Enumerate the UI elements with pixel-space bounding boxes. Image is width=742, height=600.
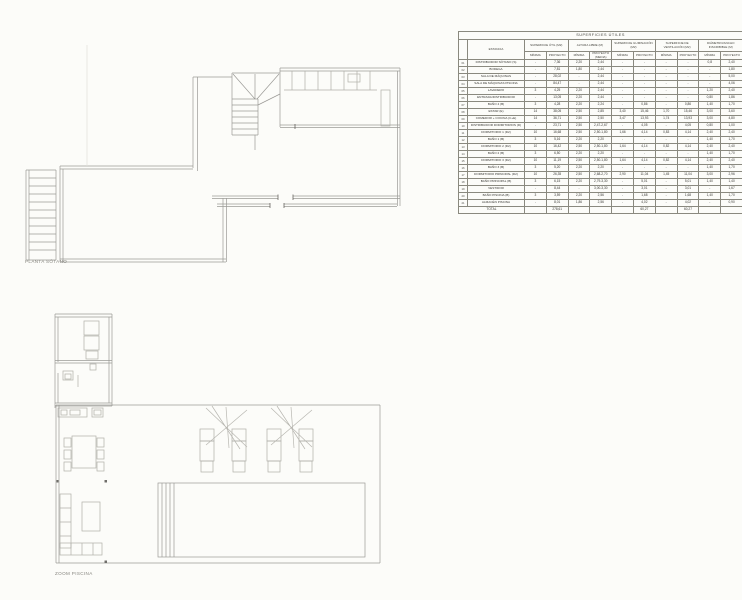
column-sub-header: PROYECTO (MEDIA)	[590, 52, 612, 60]
dining-table	[72, 436, 96, 468]
value-cell: 2,50	[568, 144, 590, 151]
value-cell: 10	[525, 144, 547, 151]
column-group-header: ALTURA LIBRE (M)	[568, 40, 612, 52]
pool-house-furniture	[63, 321, 99, 387]
row-number: 09	[459, 116, 468, 123]
room-name: DORMITORIO PRINCIPAL (D2)	[468, 172, 525, 179]
coffee-table	[82, 502, 100, 531]
value-cell: 2,40	[721, 158, 742, 165]
value-cell: -	[655, 102, 677, 109]
value-cell: 26,35	[546, 172, 568, 179]
value-cell: -	[633, 81, 655, 88]
value-cell: 13,05	[546, 95, 568, 102]
column-sub-header: MÍNIMA	[699, 52, 721, 60]
interior-staircase	[232, 74, 280, 150]
value-cell: 4,05	[633, 123, 655, 130]
value-cell: 3,00-3,30	[590, 186, 612, 193]
value-cell: 2,90	[612, 172, 634, 179]
column-sub-header: MÍNIMA	[655, 52, 677, 60]
value-cell: -	[612, 179, 634, 186]
value-cell: 5,00	[721, 74, 742, 81]
total-value-cell	[525, 207, 547, 214]
value-cell: 3,01	[677, 186, 699, 193]
pool-steps	[162, 483, 174, 557]
pool-zoom-plan	[40, 305, 400, 575]
value-cell: 23,71	[546, 123, 568, 130]
value-cell: -	[633, 60, 655, 67]
total-value-cell	[655, 207, 677, 214]
room-name: DISTRIBUIDOR DORMITORIOS (D)	[468, 123, 525, 130]
value-cell: -	[655, 186, 677, 193]
table-row: 05LAVADERO34,252,202,44----1,202,40	[459, 88, 742, 95]
value-cell: 2,20	[590, 137, 612, 144]
row-number: 12	[459, 137, 468, 144]
value-cell: 36,71	[546, 116, 568, 123]
value-cell: 1,64	[612, 144, 634, 151]
value-cell: 1,68	[677, 193, 699, 200]
column-sub-header: PROYECTO	[633, 52, 655, 60]
value-cell: 3,47	[612, 116, 634, 123]
table-row: 15DORMITORIO 3 (D2)1011,192,502,50-1,801…	[459, 158, 742, 165]
value-cell: 3,60	[721, 109, 742, 116]
value-cell: 84,47	[546, 81, 568, 88]
value-cell: 8,01	[546, 200, 568, 207]
value-cell: 1,40	[699, 151, 721, 158]
value-cell: 7,36	[546, 60, 568, 67]
column-group-header: SUPERFICIE ILUMINACIÓN (M2)	[612, 40, 656, 52]
value-cell: 5,01	[633, 179, 655, 186]
value-cell: -	[699, 81, 721, 88]
value-cell: 1,40	[699, 102, 721, 109]
value-cell: 0,90	[721, 200, 742, 207]
value-cell: 1,68	[633, 193, 655, 200]
value-cell: 4,14	[677, 144, 699, 151]
value-cell: 2,50	[568, 116, 590, 123]
row-number: 06	[459, 95, 468, 102]
value-cell: 3,00	[699, 116, 721, 123]
value-cell: 13,93	[677, 116, 699, 123]
room-name: SALA DE MÁQUINAS PISCINA	[468, 81, 525, 88]
table-row: 17DORMITORIO PRINCIPAL (D2)1026,352,502,…	[459, 172, 742, 179]
table-row: 13DORMITORIO 2 (D2)1016,422,502,50-1,801…	[459, 144, 742, 151]
column-group-header: DIÁMETRO/ANCHO INSCRIBIBLE (M)	[699, 40, 742, 52]
value-cell: 1,80	[568, 67, 590, 74]
value-cell: 0,86	[677, 102, 699, 109]
value-cell: -	[699, 67, 721, 74]
value-cell: 3	[525, 102, 547, 109]
value-cell: -	[677, 60, 699, 67]
areas-table-head: SUPERFICIES ÚTILESESTANCIASUPERFICIE ÚTI…	[459, 32, 742, 60]
value-cell: -	[525, 74, 547, 81]
value-cell: 16,68	[546, 130, 568, 137]
column-sub-header: MÍNIMA	[612, 52, 634, 60]
value-cell: 1,66	[612, 130, 634, 137]
value-cell: 0,80	[699, 95, 721, 102]
value-cell: 2,20	[568, 151, 590, 158]
value-cell: -	[655, 137, 677, 144]
value-cell: 11,04	[677, 172, 699, 179]
total-value-cell: 60,27	[633, 207, 655, 214]
toilet	[63, 371, 73, 380]
column-group-header: SUPERFICIE DE VENTILACIÓN (M2)	[655, 40, 699, 52]
value-cell: -	[655, 200, 677, 207]
total-value-cell	[568, 207, 590, 214]
value-cell: 2,20	[590, 151, 612, 158]
value-cell: 1,40	[721, 179, 742, 186]
value-cell: 2,44	[590, 74, 612, 81]
value-cell: 3,00	[699, 172, 721, 179]
total-value-cell	[590, 207, 612, 214]
scanned-plan-sheet: PLANTA SÓTANO	[0, 0, 742, 600]
value-cell: -	[525, 60, 547, 67]
value-cell: 2,50	[568, 123, 590, 130]
total-value-cell	[721, 207, 742, 214]
value-cell: -	[699, 186, 721, 193]
table-row: 18BAÑO PRINCIPAL (B)36,152,202,79-3,30-5…	[459, 179, 742, 186]
value-cell: 15,46	[677, 109, 699, 116]
column-sub-header: PROYECTO	[721, 52, 742, 60]
outdoor-kitchen-counter	[58, 408, 103, 417]
value-cell: -	[612, 102, 634, 109]
value-cell: 2,50-1,80	[590, 130, 612, 137]
table-row: 03SALA DE MÁQUINAS-28,02-2,44-----5,00	[459, 74, 742, 81]
basement-walls	[60, 68, 400, 262]
room-name: VESTIDOR	[468, 186, 525, 193]
value-cell: 2,56	[590, 200, 612, 207]
areas-table: SUPERFICIES ÚTILESESTANCIASUPERFICIE ÚTI…	[458, 31, 742, 214]
value-cell: 2,50	[568, 130, 590, 137]
total-value-cell: 60,27	[677, 207, 699, 214]
basement-plan-label: PLANTA SÓTANO	[25, 259, 67, 264]
room-name: BAÑO 4 (B)	[468, 102, 525, 109]
value-cell: 2,44	[590, 60, 612, 67]
pool-plan-label: ZOOM PISCINA	[55, 571, 93, 576]
sun-lounger	[299, 429, 313, 472]
value-cell: 4,14	[633, 144, 655, 151]
room-name: BAÑO PISCINA (B)	[468, 193, 525, 200]
value-cell: -	[612, 74, 634, 81]
table-row: 11DORMITORIO 1 (D2)1016,682,502,50-1,801…	[459, 130, 742, 137]
value-cell: -	[677, 95, 699, 102]
swimming-pool	[158, 483, 365, 557]
room-name: LAVADERO	[468, 88, 525, 95]
room-name: DORMITORIO 2 (D2)	[468, 144, 525, 151]
value-cell: 1,64	[612, 158, 634, 165]
value-cell: 2,96	[721, 172, 742, 179]
row-number: 11	[459, 130, 468, 137]
terrace-outline	[56, 405, 380, 563]
parasol-icon	[271, 406, 312, 449]
value-cell: -	[655, 151, 677, 158]
value-cell: -	[612, 95, 634, 102]
value-cell: 10	[525, 158, 547, 165]
value-cell: 2,56	[590, 193, 612, 200]
value-cell: -	[525, 95, 547, 102]
areas-table-body: 01DISTRIBUIDOR SÓTANO (S)-7,362,202,44--…	[459, 60, 742, 214]
value-cell: -	[525, 81, 547, 88]
value-cell: -	[655, 88, 677, 95]
value-cell: -	[655, 67, 677, 74]
value-cell: -	[612, 60, 634, 67]
table-row: 06ENTRADA/DISTRIBUIDOR-13,052,202,44----…	[459, 95, 742, 102]
room-name: DORMITORIO 3 (D2)	[468, 158, 525, 165]
table-title-row: SUPERFICIES ÚTILES	[459, 32, 742, 40]
value-cell: 2,50	[568, 172, 590, 179]
value-cell: -	[677, 81, 699, 88]
value-cell: 1,70	[721, 165, 742, 172]
value-cell: 10	[525, 172, 547, 179]
value-cell: 2,79-3,30	[590, 179, 612, 186]
value-cell: -	[525, 123, 547, 130]
room-name: DORMITORIO 1 (D2)	[468, 130, 525, 137]
value-cell: 1,70	[721, 137, 742, 144]
value-cell: 2,47-2,67	[590, 123, 612, 130]
value-cell: 2,20	[590, 165, 612, 172]
shelving	[284, 71, 377, 90]
value-cell: 13,93	[633, 116, 655, 123]
pool-house-walls	[55, 314, 112, 408]
value-cell: 1,20	[699, 88, 721, 95]
value-cell: 4,14	[677, 158, 699, 165]
value-cell: 4,06	[721, 81, 742, 88]
value-cell: -	[612, 88, 634, 95]
value-cell: 1,70	[721, 151, 742, 158]
row-number: 15	[459, 158, 468, 165]
value-cell: -	[612, 193, 634, 200]
dining-set	[64, 436, 104, 471]
value-cell: 4,80	[721, 116, 742, 123]
value-cell: 0,82	[655, 158, 677, 165]
value-cell: 2,44	[590, 67, 612, 74]
value-cell: 6,50	[546, 151, 568, 158]
value-cell: 2,44	[590, 95, 612, 102]
value-cell: 1,40	[699, 179, 721, 186]
total-value-cell	[699, 207, 721, 214]
total-value-cell: 278,61	[546, 207, 568, 214]
value-cell: -	[612, 200, 634, 207]
value-cell: -	[655, 165, 677, 172]
value-cell: -	[612, 151, 634, 158]
room-name: DISTRIBUIDOR SÓTANO (S)	[468, 60, 525, 67]
cabinet	[348, 74, 360, 82]
row-number: 04	[459, 81, 468, 88]
table-total-row: TOTAL278,6160,2760,27	[459, 207, 742, 214]
value-cell: 2,20	[568, 88, 590, 95]
value-cell: 11,19	[546, 158, 568, 165]
table-row: 09COMEDOR + COCINA (C+E)1436,712,502,503…	[459, 116, 742, 123]
value-cell: -	[655, 74, 677, 81]
column-header-estancia: ESTANCIA	[468, 40, 525, 60]
room-name: ESTAR (E)	[468, 109, 525, 116]
table-group-header-row: ESTANCIASUPERFICIE ÚTIL (M2)ALTURA LIBRE…	[459, 40, 742, 52]
value-cell: 2,20	[568, 137, 590, 144]
value-cell: 15,46	[633, 109, 655, 116]
value-cell: 1,80	[721, 67, 742, 74]
value-cell: 4,25	[546, 88, 568, 95]
value-cell: 1,00	[721, 123, 742, 130]
value-cell: 2,20	[568, 95, 590, 102]
total-value-cell	[612, 207, 634, 214]
value-cell: 5,01	[677, 179, 699, 186]
value-cell: 2,40	[699, 130, 721, 137]
value-cell: -	[633, 95, 655, 102]
value-cell: -	[568, 186, 590, 193]
value-cell: 0,8	[699, 60, 721, 67]
table-row: 21ALMACÉN PISCINA-8,011,862,56-4,02-4,02…	[459, 200, 742, 207]
row-number: 02	[459, 67, 468, 74]
value-cell: 2,20	[568, 60, 590, 67]
value-cell: 28,02	[546, 74, 568, 81]
value-cell: 4,14	[677, 130, 699, 137]
value-cell: 38,05	[546, 109, 568, 116]
total-label: TOTAL	[459, 207, 525, 214]
value-cell: -	[655, 60, 677, 67]
value-cell: 2,40	[721, 88, 742, 95]
value-cell: 2,40	[721, 144, 742, 151]
value-cell: 1,40	[699, 193, 721, 200]
value-cell: 1,86	[721, 95, 742, 102]
room-name: BAÑO PRINCIPAL (B)	[468, 179, 525, 186]
room-name: BAÑO 1 (B)	[468, 137, 525, 144]
value-cell: 0,86	[633, 102, 655, 109]
value-cell: 5,16	[546, 137, 568, 144]
room-name: ALMACÉN PISCINA	[468, 200, 525, 207]
value-cell: -	[612, 137, 634, 144]
row-number: 13	[459, 144, 468, 151]
value-cell: 2,20	[568, 193, 590, 200]
row-number: 21	[459, 200, 468, 207]
value-cell: -	[633, 151, 655, 158]
row-number: 18	[459, 179, 468, 186]
value-cell: 2,40	[699, 144, 721, 151]
value-cell: 2,44	[590, 88, 612, 95]
value-cell: 2,40	[699, 158, 721, 165]
value-cell: 2,85	[590, 109, 612, 116]
table-row: 08ESTAR (E)1438,052,502,853,4015,461,701…	[459, 109, 742, 116]
table-title: SUPERFICIES ÚTILES	[459, 32, 742, 40]
row-number: 05	[459, 88, 468, 95]
room-name: BAÑO 3 (B)	[468, 165, 525, 172]
value-cell: 3	[525, 179, 547, 186]
room-name: BAÑO 2 (B)	[468, 151, 525, 158]
value-cell: 5,20	[546, 165, 568, 172]
value-cell: 1,67	[721, 186, 742, 193]
value-cell: 2,50	[568, 109, 590, 116]
value-cell: 10	[525, 130, 547, 137]
value-cell: -	[568, 81, 590, 88]
value-cell: 2,44	[590, 81, 612, 88]
value-cell: 1,45	[655, 172, 677, 179]
value-cell: -	[612, 165, 634, 172]
value-cell: 2,20	[568, 102, 590, 109]
value-cell: -	[525, 67, 547, 74]
table-row: 10DISTRIBUIDOR DORMITORIOS (D)-23,712,50…	[459, 123, 742, 130]
value-cell: -	[699, 200, 721, 207]
value-cell: 3	[525, 137, 547, 144]
value-cell: 4,05	[677, 123, 699, 130]
table-row: 20BAÑO PISCINA (B)33,592,202,56-1,68-1,6…	[459, 193, 742, 200]
value-cell: 14	[525, 109, 547, 116]
value-cell: 3,40	[612, 109, 634, 116]
door-jambs	[270, 124, 295, 208]
room-name: COMEDOR + COCINA (C+E)	[468, 116, 525, 123]
value-cell: -	[612, 186, 634, 193]
column-sub-header: PROYECTO	[546, 52, 568, 60]
sun-lounger	[232, 429, 246, 472]
value-cell: 2,50	[568, 158, 590, 165]
table-row: 04SALA DE MÁQUINAS PISCINA-84,47-2,44---…	[459, 81, 742, 88]
value-cell: -	[699, 74, 721, 81]
value-cell: 2,40	[721, 60, 742, 67]
value-cell: 3	[525, 151, 547, 158]
value-cell: 3	[525, 193, 547, 200]
value-cell: 0,80	[699, 123, 721, 130]
value-cell: -	[633, 165, 655, 172]
value-cell: -	[568, 74, 590, 81]
value-cell: -	[612, 67, 634, 74]
value-cell: 7,81	[546, 67, 568, 74]
value-cell: 2,68-2,70	[590, 172, 612, 179]
row-number: 07	[459, 102, 468, 109]
column-sub-header: MÍNIMA	[525, 52, 547, 60]
table-row: 02BODEGA-7,811,802,44-----1,80	[459, 67, 742, 74]
room-name: ENTRADA/DISTRIBUIDOR	[468, 95, 525, 102]
value-cell: 2,50-1,80	[590, 144, 612, 151]
value-cell: -	[655, 95, 677, 102]
value-cell: -	[677, 67, 699, 74]
value-cell: -	[655, 123, 677, 130]
value-cell: -	[655, 193, 677, 200]
parasol-icon	[206, 406, 247, 449]
value-cell: 11,04	[633, 172, 655, 179]
value-cell: 6,15	[546, 179, 568, 186]
value-cell: 0,82	[655, 144, 677, 151]
value-cell: 4,02	[633, 200, 655, 207]
table-row: 01DISTRIBUIDOR SÓTANO (S)-7,362,202,44--…	[459, 60, 742, 67]
exterior-staircase	[26, 170, 56, 260]
sofa	[60, 494, 71, 548]
value-cell: -	[612, 123, 634, 130]
value-cell: 4,02	[677, 200, 699, 207]
row-number: 01	[459, 60, 468, 67]
row-number: 08	[459, 109, 468, 116]
basement-floor-plan	[12, 32, 412, 282]
sink	[90, 364, 96, 370]
value-cell: 2,24	[590, 102, 612, 109]
value-cell: -	[655, 81, 677, 88]
value-cell: 16,42	[546, 144, 568, 151]
value-cell: -	[633, 88, 655, 95]
value-cell: -	[677, 165, 699, 172]
value-cell: 1,70	[721, 193, 742, 200]
column-sub-header: PROYECTO	[677, 52, 699, 60]
value-cell: 2,20	[568, 179, 590, 186]
value-cell: -	[677, 74, 699, 81]
sun-lounger	[267, 429, 281, 472]
table-row: 19VESTIDOR-8,44-3,00-3,30-3,01-3,01-1,67	[459, 186, 742, 193]
value-cell: -	[677, 137, 699, 144]
room-name: SALA DE MÁQUINAS	[468, 74, 525, 81]
value-cell: 2,50-1,80	[590, 158, 612, 165]
value-cell: 4,28	[546, 102, 568, 109]
sun-lounger	[200, 429, 214, 472]
lounge-sofa-set	[60, 494, 102, 555]
row-number: 03	[459, 74, 468, 81]
value-cell: 3,59	[546, 193, 568, 200]
value-cell: 14	[525, 116, 547, 123]
value-cell: 1,70	[655, 109, 677, 116]
value-cell: -	[677, 88, 699, 95]
